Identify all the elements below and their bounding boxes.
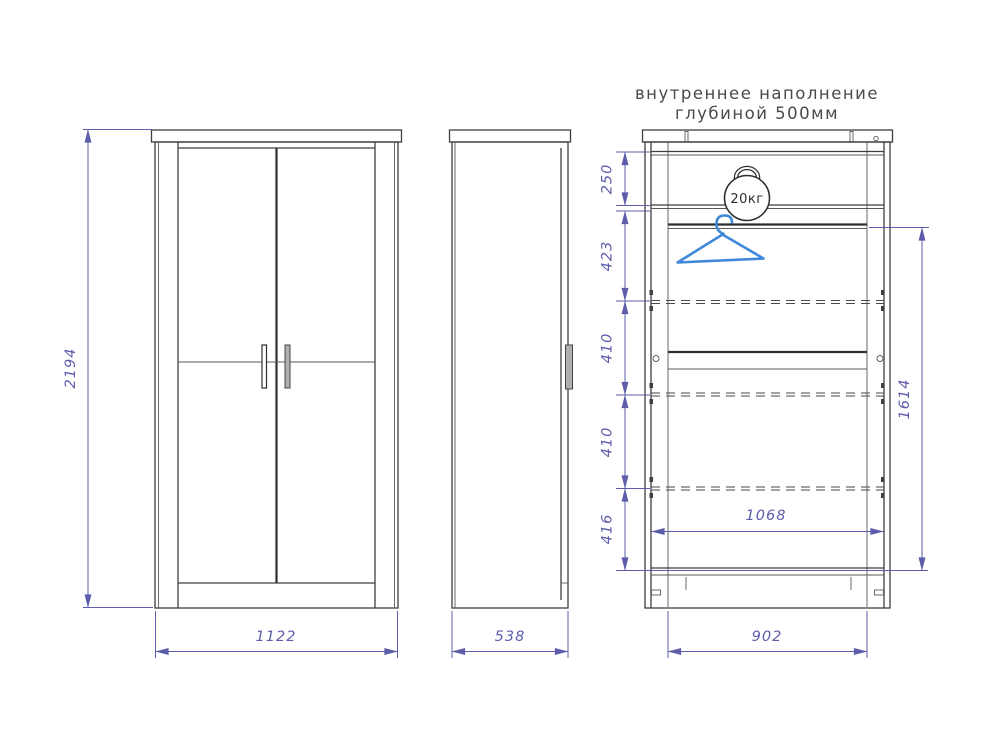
adjustable-shelf-dashed-3: [651, 487, 884, 490]
side-depth-dimension: 538: [452, 611, 568, 658]
section-4-value: 410: [600, 427, 616, 458]
drawing-title-line2: глубиной 500мм: [675, 104, 839, 123]
shelf-pin: [877, 356, 883, 362]
top-fixed-shelf: [651, 152, 884, 156]
drawing-title-line1: внутреннее наполнение: [635, 84, 879, 103]
section-3-value: 410: [600, 333, 616, 364]
max-load-label: 20кг: [730, 192, 763, 207]
section-1-value: 250: [600, 164, 616, 195]
dowel-mark: [850, 132, 853, 143]
adjustable-shelf-dashed-1: [651, 301, 884, 304]
side-door-handle: [566, 345, 573, 389]
side-cabinet-outline: [452, 142, 568, 608]
side-top-cap: [450, 130, 571, 142]
section-2-value: 423: [600, 241, 616, 272]
hanging-height-value: 1614: [897, 379, 913, 420]
adjustable-shelf-dashed-2: [651, 393, 884, 396]
internal-top-cap: [643, 130, 893, 142]
internal-cabinet-outline: [645, 142, 890, 608]
right-door-handle: [285, 345, 290, 388]
interior-width-value: 1068: [746, 508, 787, 524]
front-width-value: 1122: [256, 629, 297, 645]
drawing-canvas: внутреннее наполнение глубиной 500мм: [0, 0, 1000, 750]
shelf-pin: [653, 356, 659, 362]
side-depth-value: 538: [495, 629, 526, 645]
dowel-mark: [685, 132, 688, 143]
front-width-dimension: 1122: [156, 611, 398, 658]
front-top-cap: [152, 130, 402, 142]
fixed-middle-shelf: [653, 352, 883, 369]
hanger-rod: [668, 225, 867, 229]
section-5-value: 416: [600, 514, 616, 545]
base-width-dimension: 902: [668, 611, 867, 658]
wardrobe-technical-drawing: внутреннее наполнение глубиной 500мм: [0, 0, 1000, 750]
hanger-icon: [678, 216, 764, 263]
hanging-height-dimension: 1614: [869, 228, 929, 571]
interior-width-dimension: 1068: [652, 508, 884, 532]
bottom-panel: [651, 568, 884, 595]
kettlebell-icon: 20кг: [725, 168, 770, 221]
leg-notch: [875, 590, 884, 595]
front-height-value: 2194: [63, 348, 79, 389]
base-width-value: 902: [752, 629, 783, 645]
shelf-pin-holes: [650, 290, 885, 498]
internal-view: 20кг: [643, 130, 893, 608]
front-view: [152, 130, 402, 608]
left-door-handle: [262, 345, 267, 388]
side-view: [450, 130, 573, 608]
front-height-dimension: 2194: [63, 130, 153, 608]
cam-lock-mark: [874, 136, 878, 140]
leg-notch: [652, 590, 661, 595]
